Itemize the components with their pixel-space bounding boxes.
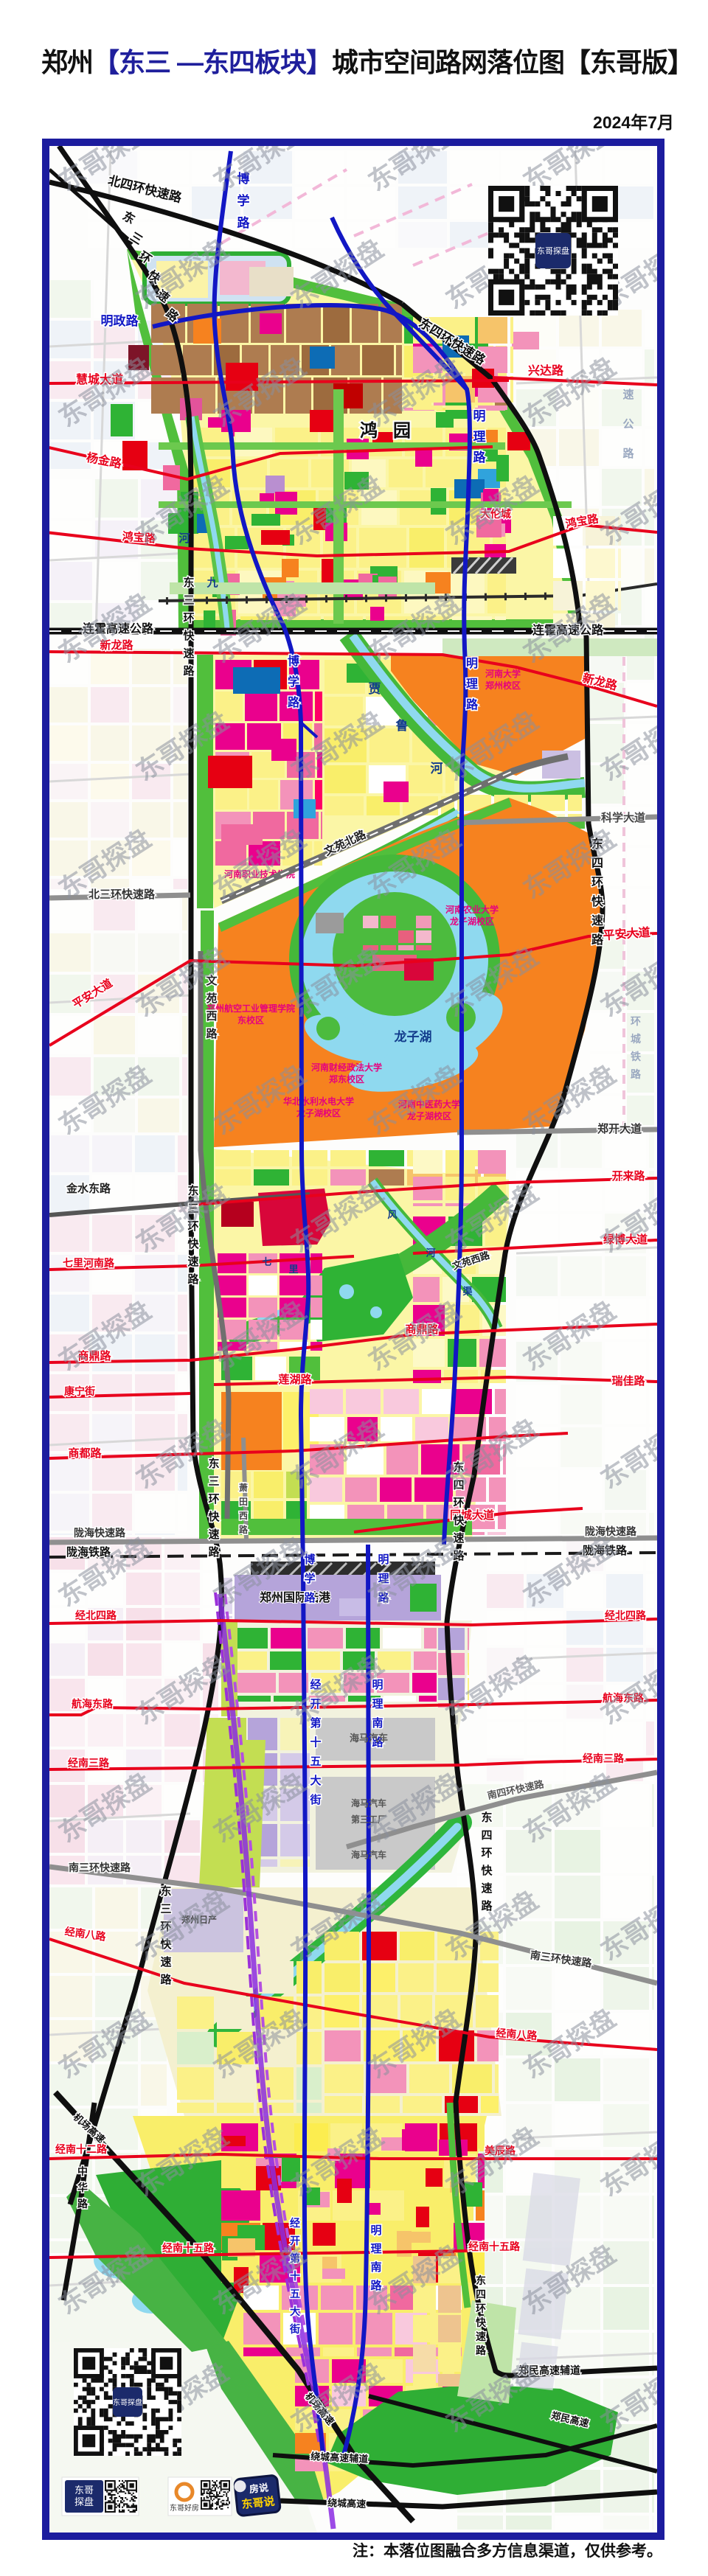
svg-text:路: 路 [476, 2344, 487, 2356]
svg-text:速: 速 [481, 1881, 492, 1895]
svg-text:经南三路: 经南三路 [68, 1757, 110, 1769]
svg-text:经南三路: 经南三路 [583, 1752, 625, 1764]
svg-text:郑州国际陆港: 郑州国际陆港 [260, 1590, 331, 1604]
svg-text:快: 快 [481, 1864, 493, 1877]
svg-text:快: 快 [183, 629, 195, 642]
svg-text:明政路: 明政路 [101, 313, 139, 328]
svg-text:九: 九 [206, 576, 218, 589]
svg-text:博: 博 [288, 654, 299, 668]
svg-text:贾: 贾 [369, 682, 381, 696]
svg-text:三: 三 [208, 1475, 219, 1488]
svg-text:南: 南 [370, 2260, 381, 2274]
svg-text:龙子湖: 龙子湖 [394, 1029, 432, 1044]
svg-text:大: 大 [310, 1774, 321, 1787]
svg-text:西: 西 [239, 1511, 248, 1521]
svg-text:四: 四 [476, 2288, 486, 2300]
svg-text:苑: 苑 [206, 992, 217, 1005]
svg-text:东: 东 [481, 1811, 492, 1824]
svg-text:东: 东 [160, 1884, 171, 1898]
svg-text:理: 理 [372, 1698, 383, 1710]
svg-text:风: 风 [387, 1209, 397, 1220]
svg-text:西: 西 [206, 1010, 217, 1023]
svg-text:环: 环 [183, 612, 194, 624]
svg-text:东哥探盘: 东哥探盘 [113, 2398, 142, 2407]
svg-text:环: 环 [631, 1015, 641, 1027]
svg-text:东: 东 [208, 1457, 219, 1470]
svg-text:环: 环 [591, 876, 603, 889]
svg-text:渠: 渠 [462, 1286, 473, 1297]
svg-text:园: 园 [393, 421, 411, 441]
svg-text:商都路: 商都路 [68, 1447, 102, 1460]
svg-text:郑州航空工业管理学院: 郑州航空工业管理学院 [206, 1003, 295, 1014]
svg-text:七里河南路: 七里河南路 [63, 1257, 115, 1269]
svg-text:速: 速 [476, 2330, 486, 2342]
svg-text:里: 里 [288, 1264, 298, 1275]
svg-text:街: 街 [309, 1793, 321, 1806]
svg-text:理: 理 [466, 678, 478, 691]
svg-text:河: 河 [426, 1247, 435, 1259]
svg-text:海马汽车: 海马汽车 [351, 1797, 386, 1809]
svg-text:路: 路 [631, 1068, 642, 1080]
svg-text:金水东路: 金水东路 [66, 1182, 111, 1195]
svg-text:快: 快 [476, 2316, 487, 2328]
svg-text:科学大道: 科学大道 [601, 811, 645, 824]
svg-text:南: 南 [372, 1716, 383, 1730]
svg-text:路: 路 [466, 697, 479, 711]
svg-text:东校区: 东校区 [237, 1014, 264, 1026]
svg-text:速: 速 [591, 914, 603, 927]
svg-text:海马汽车: 海马汽车 [350, 1733, 388, 1744]
svg-text:理: 理 [473, 430, 486, 444]
svg-text:绕城高速: 绕城高速 [327, 2497, 367, 2510]
svg-text:环: 环 [208, 1493, 219, 1505]
svg-text:路: 路 [208, 1545, 220, 1559]
svg-text:东哥探盘: 东哥探盘 [537, 246, 569, 256]
svg-text:开来路: 开来路 [611, 1169, 645, 1183]
svg-text:七: 七 [262, 1256, 271, 1267]
svg-text:速: 速 [160, 1955, 171, 1968]
svg-text:大: 大 [290, 2305, 300, 2317]
svg-text:学: 学 [288, 675, 299, 689]
svg-text:明: 明 [378, 1553, 389, 1566]
svg-text:速: 速 [622, 388, 634, 401]
svg-text:海马汽车: 海马汽车 [351, 1849, 386, 1860]
svg-text:东哥好房: 东哥好房 [170, 2503, 199, 2513]
svg-text:速: 速 [208, 1528, 219, 1541]
svg-text:经南十五路: 经南十五路 [162, 2242, 215, 2254]
svg-text:环: 环 [453, 1497, 464, 1509]
svg-text:理: 理 [370, 2243, 381, 2255]
svg-text:路: 路 [304, 1591, 316, 1604]
svg-text:经南十五路: 经南十五路 [468, 2241, 521, 2252]
svg-text:探盘: 探盘 [74, 2496, 94, 2507]
svg-text:四: 四 [481, 1829, 492, 1842]
svg-text:十: 十 [310, 1736, 321, 1749]
svg-text:东: 东 [183, 576, 194, 589]
svg-text:郑州校区: 郑州校区 [485, 680, 521, 691]
svg-text:河: 河 [178, 532, 190, 545]
svg-text:路: 路 [591, 933, 604, 947]
svg-text:兴达路: 兴达路 [528, 363, 564, 377]
svg-text:明: 明 [473, 409, 486, 423]
svg-text:北三环快速路: 北三环快速路 [88, 888, 156, 901]
svg-text:郑东校区: 郑东校区 [329, 1073, 364, 1085]
svg-text:路: 路 [473, 450, 487, 464]
svg-text:快: 快 [208, 1510, 220, 1523]
svg-text:康宁街: 康宁街 [64, 1385, 95, 1397]
svg-text:瑞佳路: 瑞佳路 [611, 1374, 645, 1388]
svg-text:华: 华 [77, 2182, 88, 2193]
svg-text:路: 路 [187, 1273, 199, 1286]
svg-text:快: 快 [187, 1237, 199, 1250]
svg-text:经南十二路: 经南十二路 [55, 2143, 108, 2155]
svg-text:鲁: 鲁 [396, 718, 409, 733]
svg-text:萧: 萧 [239, 1482, 248, 1493]
svg-text:郑开大道: 郑开大道 [597, 1122, 642, 1135]
svg-text:速: 速 [183, 647, 194, 660]
svg-text:城: 城 [631, 1033, 641, 1045]
svg-text:公: 公 [622, 418, 634, 431]
svg-text:河南大学: 河南大学 [485, 668, 521, 679]
svg-text:学: 学 [304, 1572, 315, 1585]
svg-text:路: 路 [160, 1973, 172, 1986]
svg-text:铁: 铁 [631, 1051, 641, 1062]
svg-text:华北水利水电大学: 华北水利水电大学 [283, 1096, 354, 1107]
svg-text:路: 路 [183, 664, 195, 678]
svg-text:田: 田 [239, 1497, 248, 1507]
svg-text:经: 经 [290, 2217, 300, 2229]
svg-text:五: 五 [290, 2288, 300, 2300]
svg-text:三: 三 [160, 1903, 171, 1915]
svg-text:路: 路 [77, 2198, 88, 2210]
svg-text:速: 速 [187, 1255, 198, 1268]
svg-text:陇海快速路: 陇海快速路 [74, 1527, 126, 1539]
svg-text:三: 三 [183, 594, 194, 607]
svg-text:明: 明 [466, 657, 478, 670]
svg-text:环: 环 [481, 1847, 492, 1859]
svg-text:路: 路 [288, 695, 300, 709]
svg-text:东哥: 东哥 [74, 2485, 94, 2496]
svg-text:路: 路 [239, 1524, 249, 1535]
svg-text:学: 学 [237, 193, 250, 208]
svg-text:街: 街 [289, 2323, 300, 2335]
svg-text:路: 路 [206, 1027, 218, 1040]
svg-text:南三环快速路: 南三环快速路 [69, 1862, 131, 1873]
svg-text:航海东路: 航海东路 [72, 1698, 114, 1710]
svg-text:莲湖路: 莲湖路 [278, 1373, 312, 1386]
svg-text:房说: 房说 [249, 2482, 268, 2495]
svg-text:路: 路 [237, 215, 251, 230]
svg-text:经北四路: 经北四路 [75, 1609, 117, 1621]
svg-text:河南农业大学: 河南农业大学 [445, 904, 499, 915]
svg-text:河南财经政法大学: 河南财经政法大学 [310, 1062, 382, 1073]
svg-text:陇海快速路: 陇海快速路 [585, 1525, 637, 1537]
svg-text:明: 明 [370, 2224, 381, 2237]
svg-text:快: 快 [591, 894, 604, 908]
svg-text:河: 河 [431, 762, 443, 776]
svg-text:龙子湖校区: 龙子湖校区 [450, 916, 494, 927]
svg-text:五: 五 [310, 1755, 321, 1768]
svg-text:经北四路: 经北四路 [605, 1609, 647, 1621]
svg-text:路: 路 [622, 447, 634, 460]
svg-text:环: 环 [476, 2302, 486, 2314]
svg-text:东: 东 [476, 2274, 486, 2286]
svg-text:中: 中 [77, 2165, 88, 2177]
svg-text:快: 快 [453, 1514, 465, 1527]
